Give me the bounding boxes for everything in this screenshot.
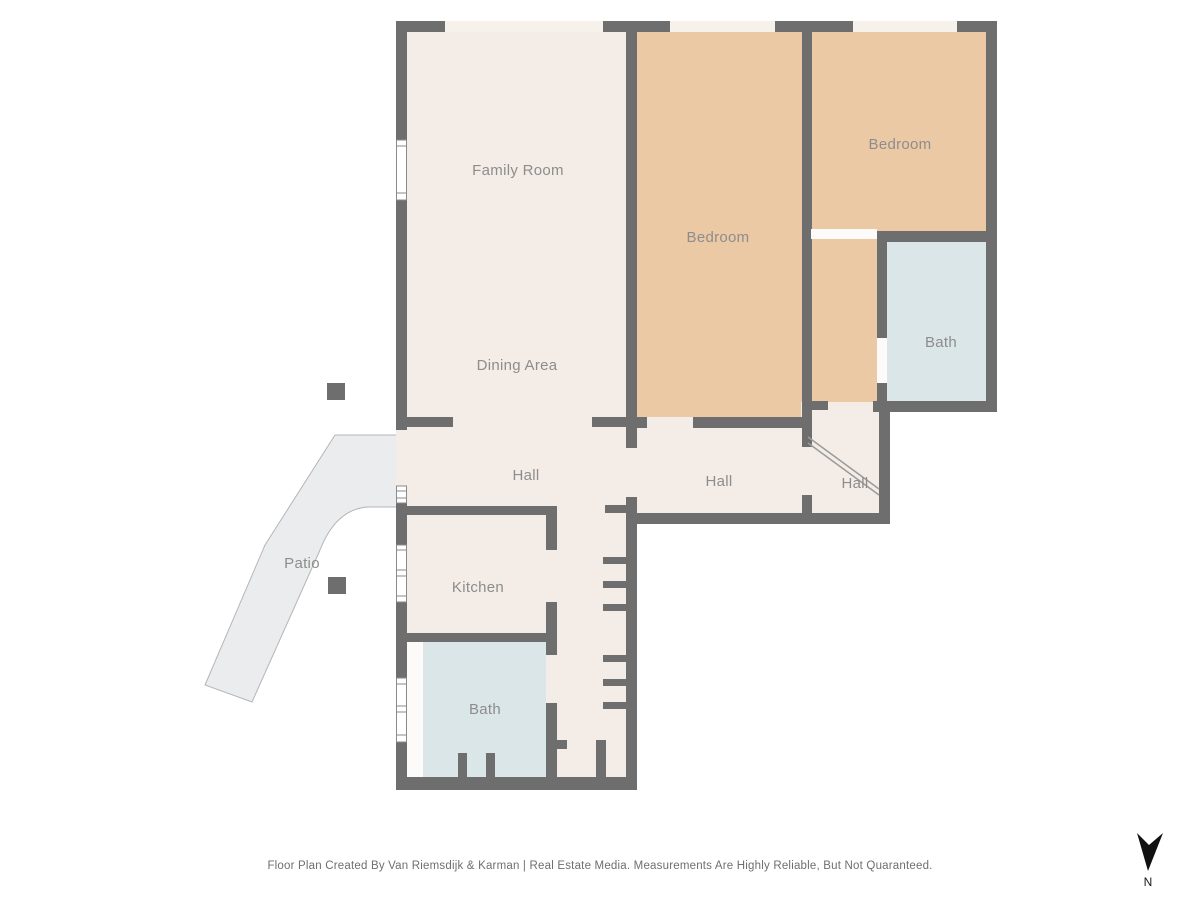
window-hall — [396, 486, 407, 503]
room-bedroom-right — [813, 21, 990, 242]
window-family-room — [396, 140, 407, 200]
floor-plan-page: Family Room Bedroom Bedroom Bath Dining … — [0, 0, 1200, 900]
label-hall-center: Hall — [705, 473, 732, 490]
label-dining-area: Dining Area — [477, 357, 558, 374]
floor-plan-drawing: Family Room Bedroom Bedroom Bath Dining … — [0, 0, 1200, 900]
label-bedroom-center: Bedroom — [687, 229, 750, 246]
room-closet — [801, 237, 881, 410]
label-bedroom-right: Bedroom — [869, 136, 932, 153]
label-bath-lower: Bath — [469, 701, 501, 718]
label-family-room: Family Room — [472, 162, 564, 179]
label-hall-main: Hall — [512, 467, 539, 484]
room-bedroom-center — [637, 21, 813, 417]
footer-credit: Floor Plan Created By Van Riemsdijk & Ka… — [0, 860, 1200, 872]
label-hall-right: Hall — [841, 475, 868, 492]
window-kitchen — [396, 545, 407, 602]
label-kitchen: Kitchen — [452, 579, 504, 596]
room-bath-right — [877, 231, 997, 412]
label-patio: Patio — [284, 555, 320, 572]
room-kitchen — [400, 506, 557, 642]
window-bath-lower — [396, 678, 407, 742]
top-wall-windows — [445, 21, 957, 32]
north-label: N — [1144, 875, 1153, 889]
label-bath-right: Bath — [925, 334, 957, 351]
